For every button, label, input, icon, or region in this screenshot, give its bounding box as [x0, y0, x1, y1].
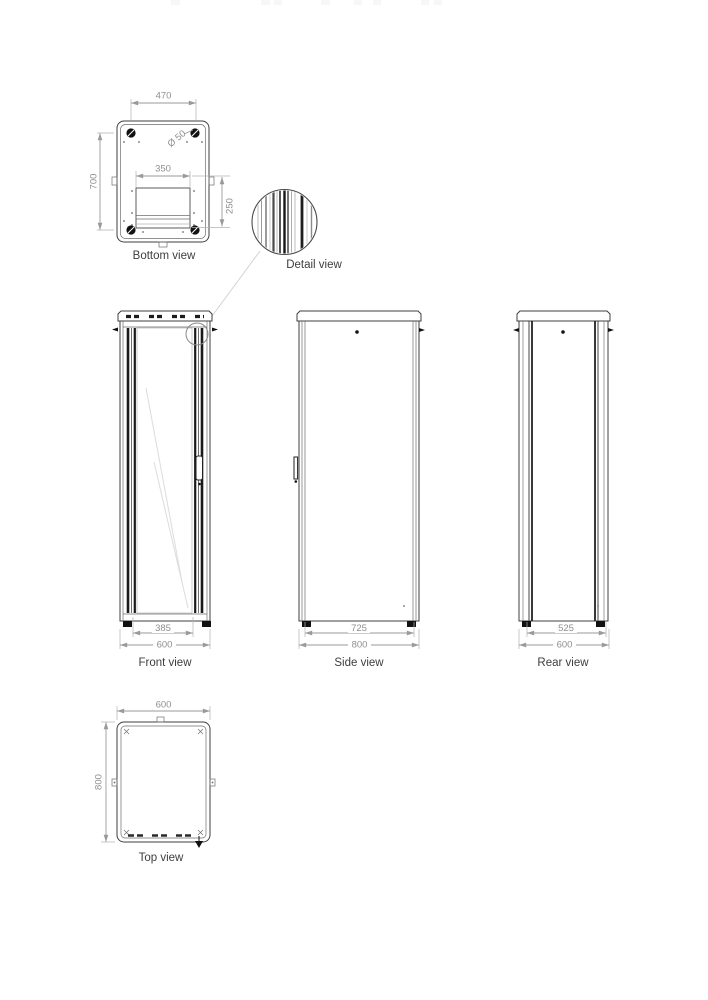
- top-view: 600 800 Top view: [94, 700, 216, 865]
- rear-top-cap: [517, 311, 610, 321]
- side-door-handle: [294, 457, 298, 483]
- dimension-700: 700: [89, 133, 115, 230]
- detail-view-label: Detail view: [286, 259, 342, 271]
- technical-drawing-page: 470 700 350 250 Ø 50 Bottom view: [0, 0, 708, 1000]
- side-view-label: Side view: [334, 657, 384, 669]
- dim-600-front-text: 600: [157, 640, 173, 651]
- bottom-view-label: Bottom view: [133, 250, 196, 262]
- dimension-525: 525: [527, 622, 606, 637]
- dim-250-text: 250: [225, 198, 236, 214]
- cable-entry-cutout: [136, 188, 190, 228]
- side-front-foot: [302, 621, 311, 627]
- front-left-hinge-tab: [112, 328, 118, 332]
- rear-right-tab: [608, 328, 614, 332]
- side-top-cap: [297, 311, 421, 321]
- front-lock-dot: [198, 483, 201, 486]
- rear-bottom-hole: [597, 605, 599, 607]
- drawing-canvas: 470 700 350 250 Ø 50 Bottom view: [0, 0, 708, 1000]
- bottom-view: 470 700 350 250 Ø 50 Bottom view: [89, 91, 236, 263]
- dim-470-text: 470: [156, 91, 172, 102]
- dim-800-top-text: 800: [94, 774, 105, 790]
- front-right-hinge-tab: [212, 328, 218, 332]
- dim-800-side-text: 800: [352, 640, 368, 651]
- dimension-470: 470: [131, 91, 196, 121]
- dim-525-text: 525: [558, 623, 574, 634]
- top-center-notch: [157, 717, 164, 722]
- rear-view: 525 600 Rear view: [513, 311, 614, 669]
- rear-left-tab: [513, 328, 519, 332]
- front-view-label: Front view: [138, 657, 192, 669]
- rear-left-foot: [522, 621, 531, 627]
- dim-700-text: 700: [89, 174, 100, 190]
- top-edge-artifacts: [171, 0, 442, 5]
- side-bottom-hole: [403, 605, 405, 607]
- front-right-foot: [202, 621, 211, 627]
- dim-600-rear-text: 600: [557, 640, 573, 651]
- side-view: 725 800 Side view: [294, 311, 425, 669]
- dim-725-text: 725: [351, 623, 367, 634]
- dimension-725: 725: [305, 622, 414, 637]
- dim-600-top-text: 600: [156, 700, 172, 711]
- front-view: 385 600 Front view: [112, 311, 218, 669]
- rear-right-foot: [596, 621, 605, 627]
- side-top-hole: [355, 330, 359, 334]
- rear-view-label: Rear view: [537, 657, 589, 669]
- top-outline: [117, 722, 210, 842]
- side-rear-foot: [407, 621, 416, 627]
- rear-top-hole: [561, 330, 565, 334]
- front-left-foot: [123, 621, 132, 627]
- dim-385-text: 385: [155, 623, 171, 634]
- top-view-label: Top view: [139, 852, 184, 864]
- dim-350-text: 350: [155, 164, 171, 175]
- side-rear-tab: [419, 328, 425, 332]
- side-body-outline: [299, 321, 419, 621]
